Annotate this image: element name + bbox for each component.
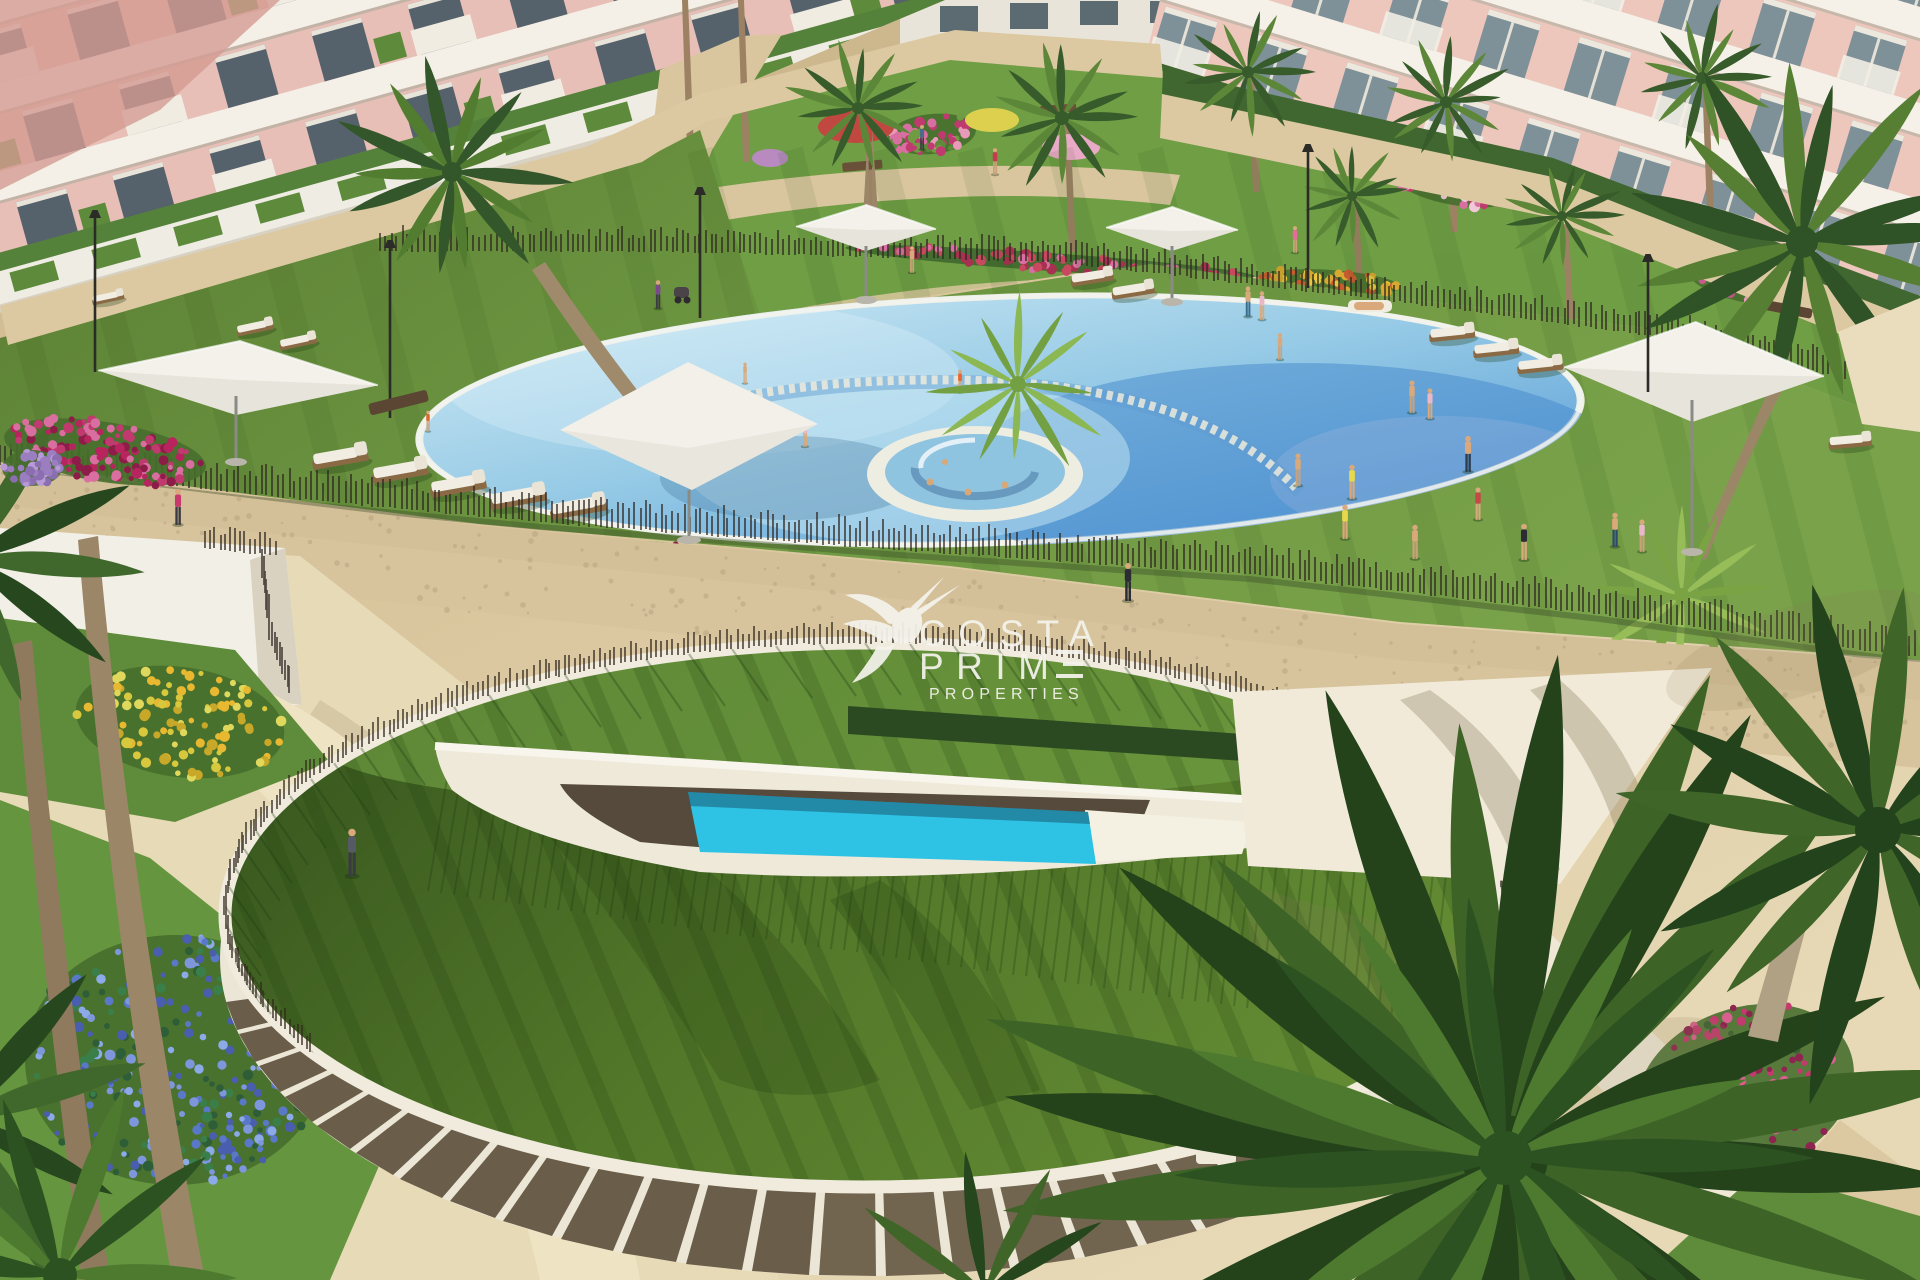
- svg-text:PRIM: PRIM: [919, 646, 1062, 687]
- svg-text:PROPERTIES: PROPERTIES: [929, 686, 1084, 703]
